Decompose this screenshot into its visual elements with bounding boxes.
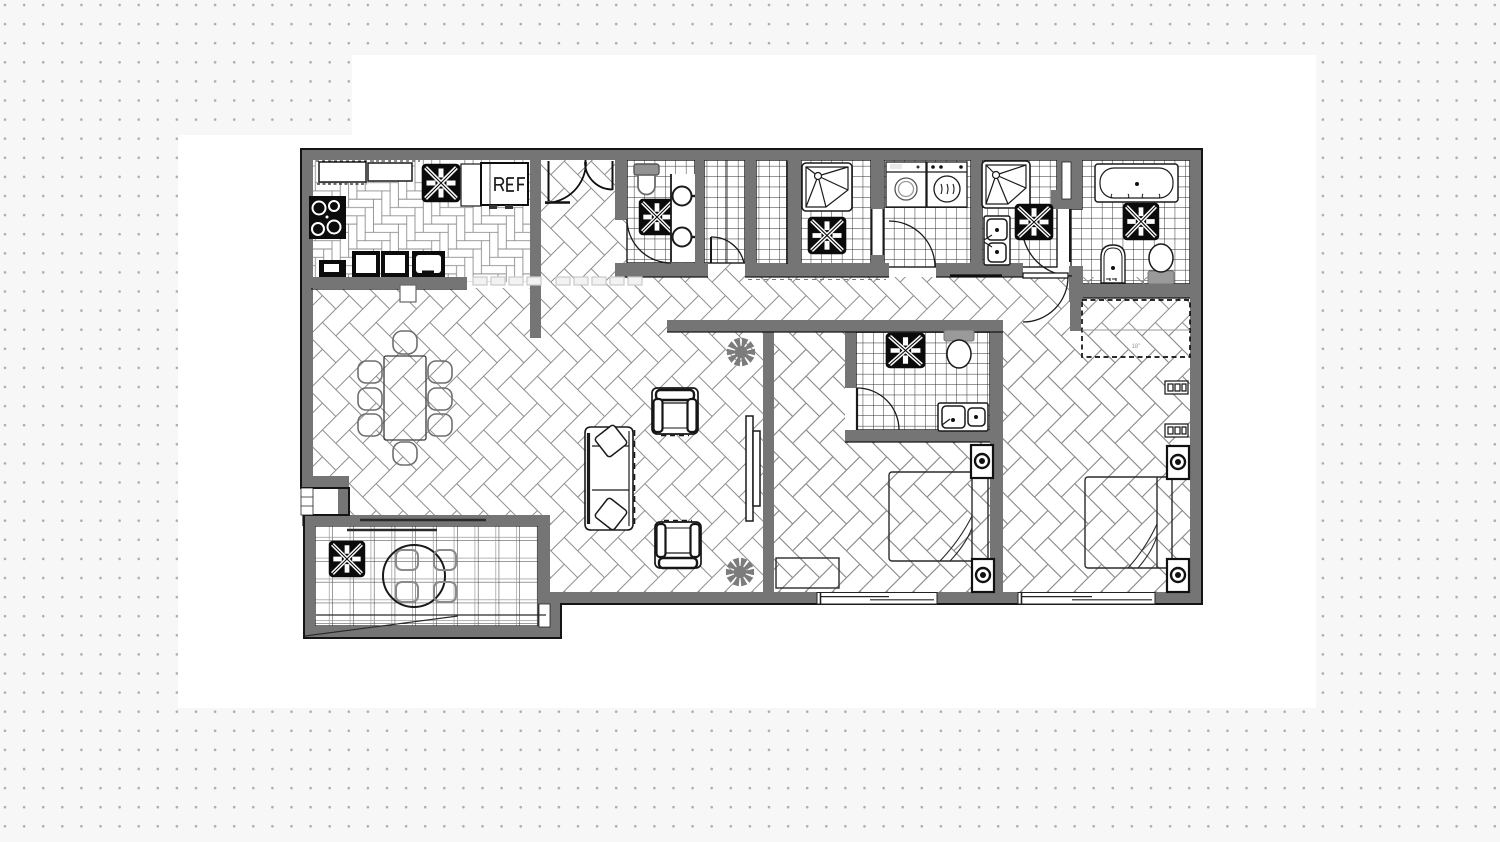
svg-text:18": 18" bbox=[1132, 344, 1141, 350]
